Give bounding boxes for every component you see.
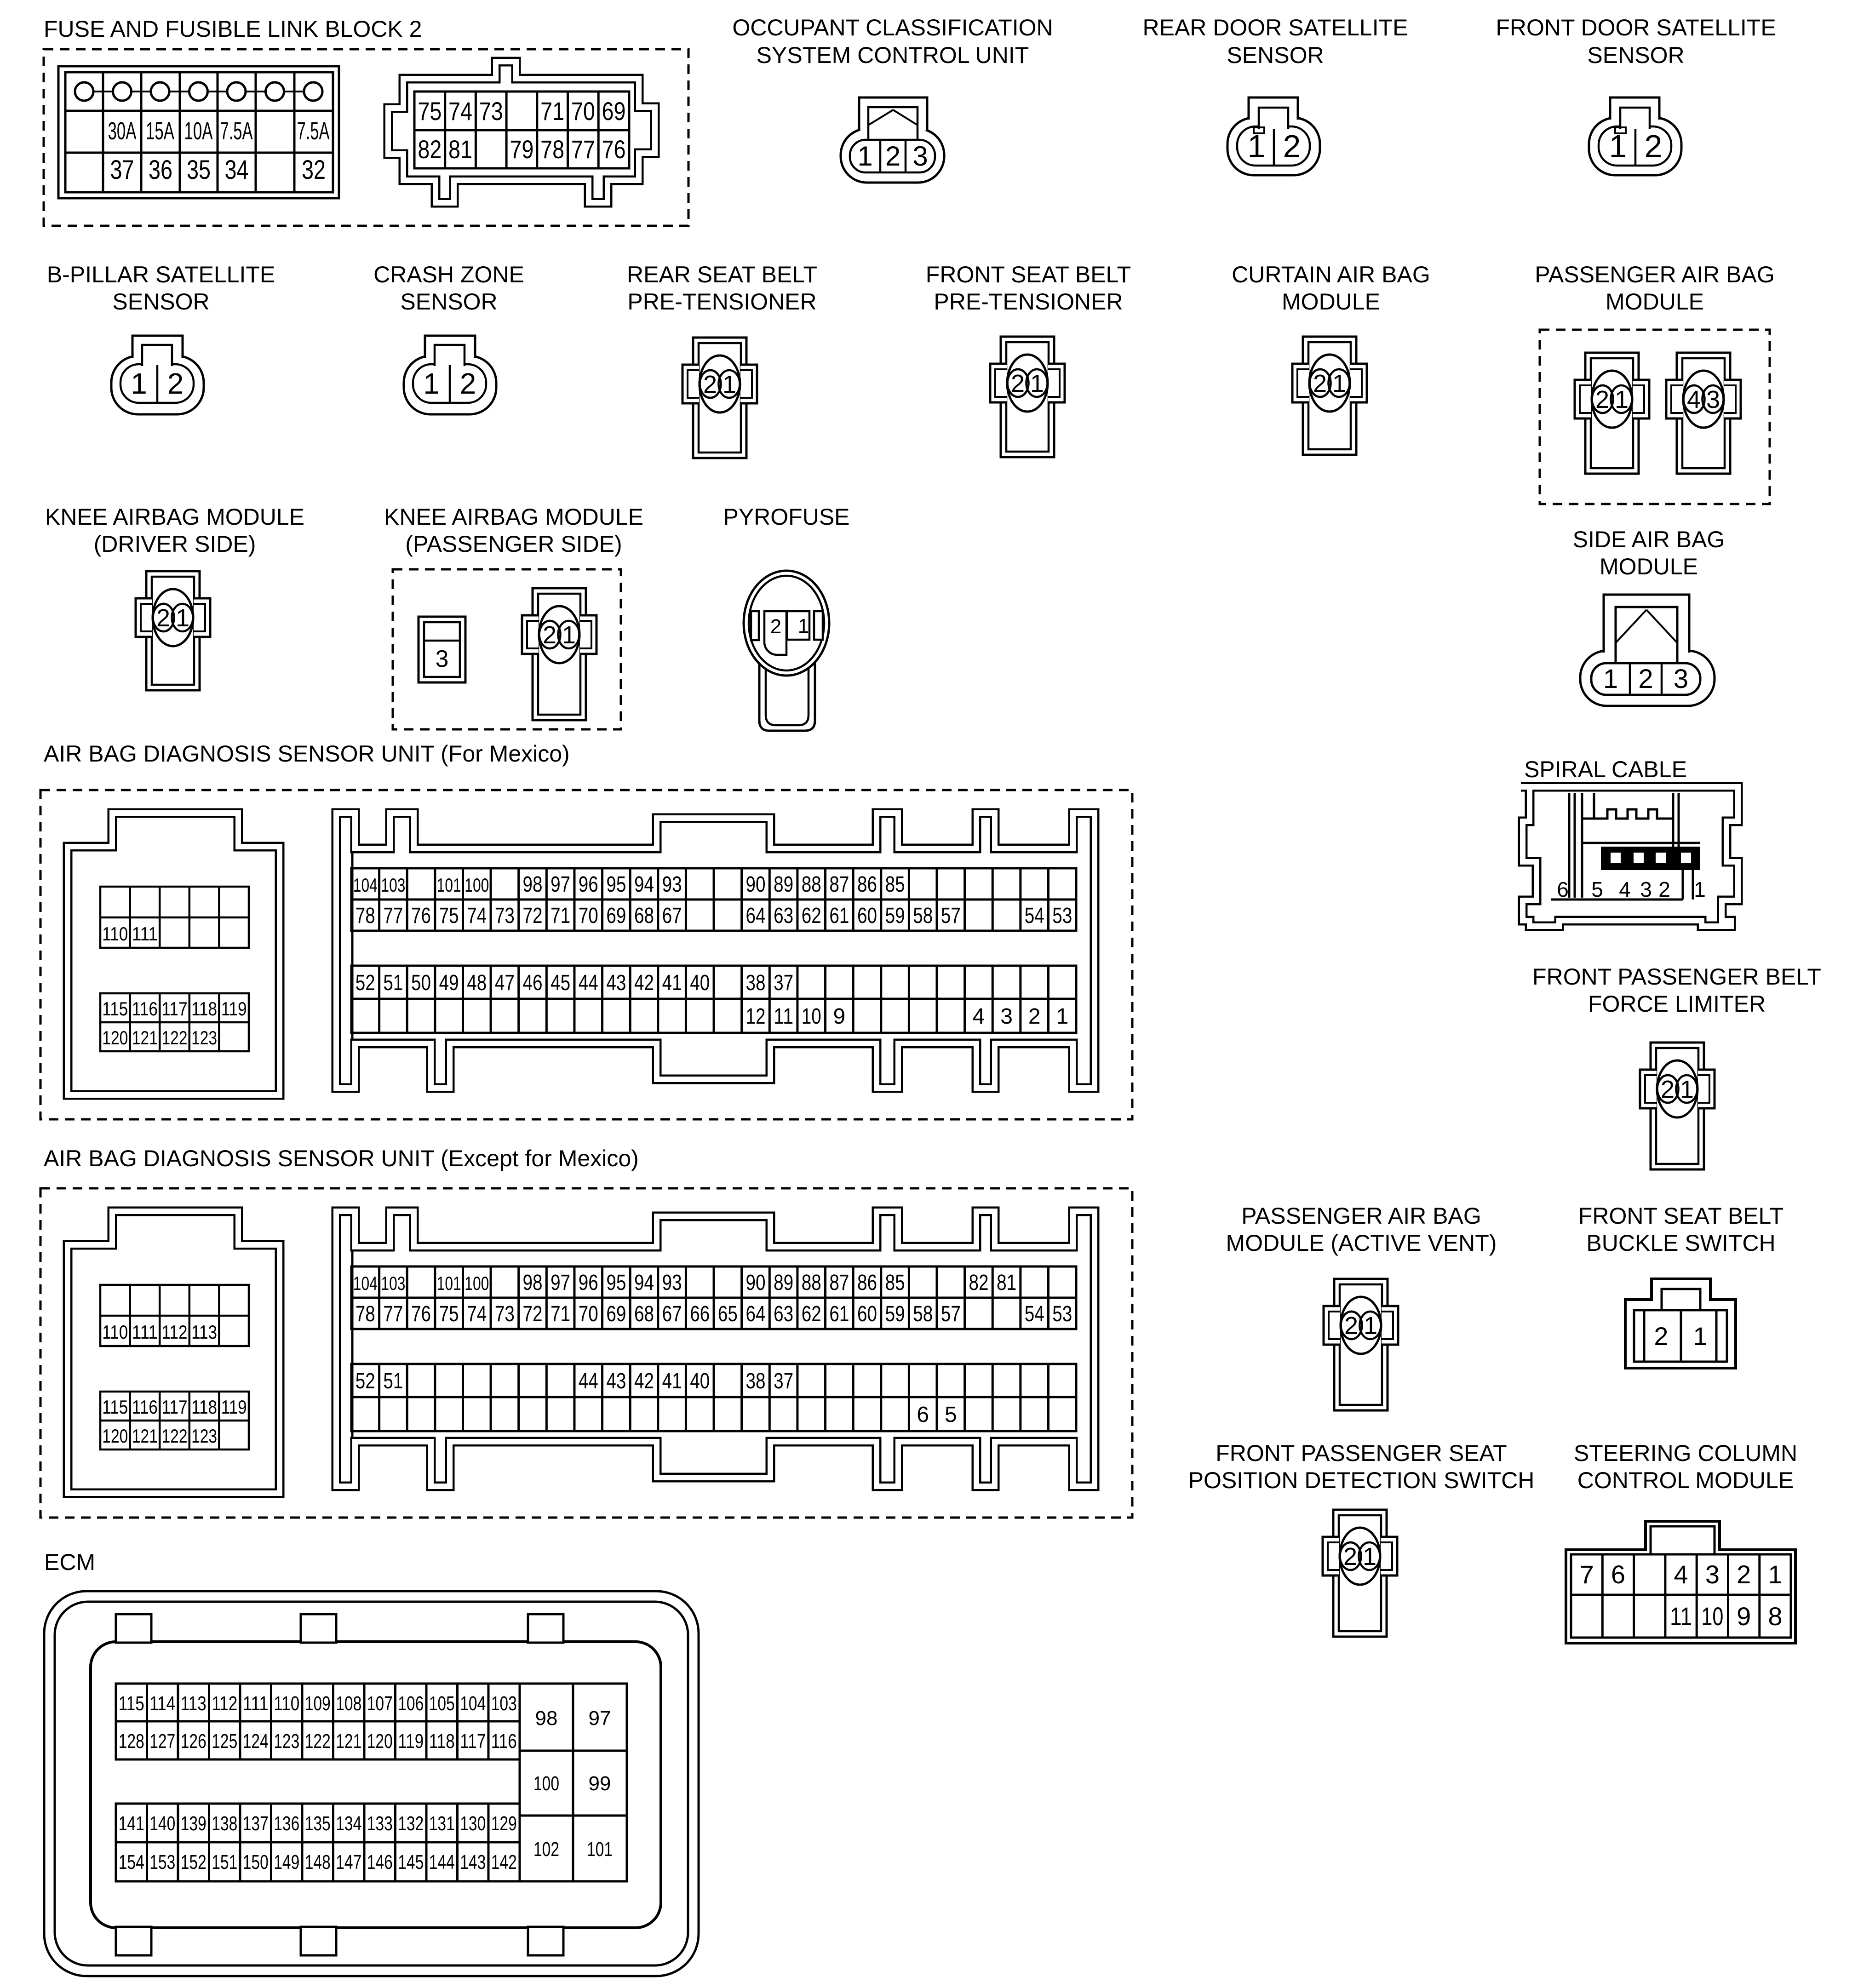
svg-text:CURTAIN AIR BAG: CURTAIN AIR BAG — [1232, 262, 1430, 287]
svg-text:51: 51 — [383, 1369, 403, 1393]
svg-text:111: 111 — [132, 923, 158, 945]
svg-text:40: 40 — [690, 1369, 710, 1393]
svg-text:36: 36 — [149, 155, 172, 185]
svg-text:101: 101 — [437, 1272, 461, 1294]
svg-text:90: 90 — [745, 1271, 765, 1295]
svg-text:153: 153 — [149, 1851, 175, 1873]
svg-text:58: 58 — [913, 904, 933, 928]
svg-text:151: 151 — [212, 1851, 237, 1873]
svg-text:38: 38 — [745, 1369, 765, 1393]
svg-text:41: 41 — [662, 971, 682, 995]
svg-text:116: 116 — [491, 1730, 517, 1753]
svg-text:122: 122 — [305, 1730, 331, 1753]
svg-text:MODULE: MODULE — [1282, 289, 1380, 315]
svg-text:85: 85 — [885, 1271, 905, 1295]
svg-text:4: 4 — [1674, 1560, 1688, 1589]
svg-text:3: 3 — [1705, 1560, 1720, 1589]
svg-text:SENSOR: SENSOR — [1587, 42, 1684, 68]
svg-text:11: 11 — [774, 1004, 793, 1029]
svg-text:6: 6 — [917, 1403, 929, 1427]
svg-text:76: 76 — [411, 1302, 431, 1326]
svg-text:5: 5 — [945, 1403, 957, 1427]
svg-text:MODULE: MODULE — [1606, 289, 1704, 315]
svg-text:32: 32 — [302, 155, 326, 185]
svg-text:54: 54 — [1025, 904, 1044, 928]
svg-text:AIR BAG DIAGNOSIS SENSOR UNIT: AIR BAG DIAGNOSIS SENSOR UNIT (For Mexic… — [44, 741, 570, 767]
svg-text:3: 3 — [912, 141, 928, 172]
svg-text:67: 67 — [662, 904, 682, 928]
svg-text:154: 154 — [119, 1851, 144, 1873]
svg-text:125: 125 — [212, 1730, 237, 1753]
svg-text:2: 2 — [543, 621, 556, 649]
svg-text:52: 52 — [356, 971, 375, 995]
svg-text:38: 38 — [745, 971, 765, 995]
svg-text:3: 3 — [436, 646, 449, 672]
svg-text:67: 67 — [662, 1302, 682, 1326]
svg-text:86: 86 — [857, 872, 877, 897]
svg-text:10: 10 — [1701, 1602, 1723, 1631]
svg-text:120: 120 — [102, 1425, 128, 1447]
svg-text:97: 97 — [589, 1707, 611, 1730]
svg-text:7: 7 — [1580, 1560, 1594, 1589]
svg-text:110: 110 — [102, 923, 128, 945]
svg-text:1: 1 — [1364, 1312, 1377, 1340]
svg-text:CRASH ZONE: CRASH ZONE — [373, 262, 524, 287]
svg-text:63: 63 — [774, 1302, 793, 1326]
svg-text:2: 2 — [703, 371, 717, 398]
svg-text:FORCE LIMITER: FORCE LIMITER — [1588, 991, 1766, 1017]
svg-text:99: 99 — [589, 1772, 611, 1795]
svg-text:2: 2 — [1343, 1543, 1357, 1570]
svg-text:FRONT PASSENGER BELT: FRONT PASSENGER BELT — [1532, 964, 1821, 990]
svg-text:112: 112 — [162, 1321, 188, 1343]
svg-text:71: 71 — [551, 1302, 570, 1326]
svg-text:62: 62 — [802, 1302, 821, 1326]
svg-text:110: 110 — [102, 1321, 128, 1343]
svg-text:48: 48 — [467, 971, 487, 995]
svg-text:62: 62 — [802, 904, 821, 928]
svg-text:1: 1 — [1680, 1076, 1694, 1103]
svg-text:126: 126 — [181, 1730, 206, 1753]
svg-text:88: 88 — [802, 872, 821, 897]
svg-text:1: 1 — [1248, 128, 1266, 164]
svg-text:145: 145 — [398, 1851, 424, 1873]
svg-text:113: 113 — [181, 1692, 206, 1715]
svg-text:11: 11 — [1670, 1602, 1692, 1631]
svg-text:FRONT SEAT BELT: FRONT SEAT BELT — [1578, 1203, 1783, 1229]
svg-text:129: 129 — [491, 1812, 517, 1835]
svg-text:116: 116 — [132, 998, 158, 1020]
svg-text:KNEE AIRBAG MODULE: KNEE AIRBAG MODULE — [384, 504, 643, 530]
svg-text:100: 100 — [464, 1272, 489, 1294]
svg-text:60: 60 — [857, 1302, 877, 1326]
svg-text:93: 93 — [662, 872, 682, 897]
svg-text:BUCKLE SWITCH: BUCKLE SWITCH — [1586, 1230, 1775, 1256]
svg-text:CONTROL MODULE: CONTROL MODULE — [1577, 1467, 1794, 1493]
svg-text:73: 73 — [495, 1302, 515, 1326]
svg-text:79: 79 — [510, 135, 533, 164]
svg-text:64: 64 — [745, 904, 765, 928]
svg-text:PASSENGER AIR BAG: PASSENGER AIR BAG — [1535, 262, 1774, 287]
svg-text:117: 117 — [162, 1396, 188, 1418]
svg-text:105: 105 — [429, 1692, 455, 1715]
svg-text:124: 124 — [243, 1730, 269, 1753]
svg-text:117: 117 — [460, 1730, 486, 1753]
svg-text:140: 140 — [149, 1812, 175, 1835]
svg-text:FUSE AND FUSIBLE LINK BLOCK 2: FUSE AND FUSIBLE LINK BLOCK 2 — [44, 16, 422, 42]
svg-text:60: 60 — [857, 904, 877, 928]
svg-text:(DRIVER SIDE): (DRIVER SIDE) — [94, 531, 256, 557]
svg-text:118: 118 — [191, 1396, 217, 1418]
svg-text:104: 104 — [353, 874, 378, 896]
svg-text:41: 41 — [662, 1369, 682, 1393]
svg-text:68: 68 — [634, 1302, 654, 1326]
svg-text:130: 130 — [460, 1812, 486, 1835]
svg-text:121: 121 — [132, 1425, 158, 1447]
svg-text:115: 115 — [102, 1396, 128, 1418]
svg-text:B-PILLAR SATELLITE: B-PILLAR SATELLITE — [47, 262, 275, 287]
svg-text:131: 131 — [429, 1812, 455, 1835]
svg-text:76: 76 — [602, 135, 626, 164]
svg-text:MODULE (ACTIVE VENT): MODULE (ACTIVE VENT) — [1226, 1230, 1497, 1256]
svg-text:69: 69 — [606, 904, 626, 928]
svg-text:104: 104 — [353, 1272, 378, 1294]
svg-text:2: 2 — [1028, 1004, 1041, 1029]
svg-text:72: 72 — [523, 904, 543, 928]
svg-text:2: 2 — [1661, 1076, 1674, 1103]
svg-text:1: 1 — [857, 141, 872, 172]
svg-text:119: 119 — [221, 1396, 247, 1418]
svg-text:111: 111 — [132, 1321, 158, 1343]
svg-text:97: 97 — [551, 872, 570, 897]
svg-text:76: 76 — [411, 904, 431, 928]
svg-text:PRE-TENSIONER: PRE-TENSIONER — [934, 289, 1123, 315]
svg-text:FRONT DOOR SATELLITE: FRONT DOOR SATELLITE — [1496, 15, 1776, 40]
svg-text:63: 63 — [774, 904, 793, 928]
svg-text:3: 3 — [1000, 1004, 1013, 1029]
svg-text:1: 1 — [423, 367, 440, 400]
svg-text:7.5A: 7.5A — [220, 117, 253, 145]
svg-text:88: 88 — [802, 1271, 821, 1295]
svg-text:1: 1 — [1363, 1543, 1376, 1570]
svg-text:1: 1 — [1056, 1004, 1068, 1029]
svg-text:2: 2 — [1638, 664, 1653, 694]
svg-text:2: 2 — [770, 615, 781, 638]
svg-text:54: 54 — [1025, 1302, 1044, 1326]
svg-text:FRONT PASSENGER SEAT: FRONT PASSENGER SEAT — [1216, 1440, 1507, 1466]
svg-text:147: 147 — [336, 1851, 361, 1873]
svg-text:66: 66 — [690, 1302, 710, 1326]
svg-text:146: 146 — [367, 1851, 393, 1873]
svg-text:77: 77 — [571, 135, 595, 164]
svg-text:52: 52 — [356, 1369, 375, 1393]
svg-text:1: 1 — [1693, 1322, 1707, 1351]
svg-text:98: 98 — [523, 1271, 543, 1295]
svg-text:FRONT SEAT BELT: FRONT SEAT BELT — [926, 262, 1131, 287]
svg-text:141: 141 — [119, 1812, 144, 1835]
svg-text:89: 89 — [774, 872, 793, 897]
svg-text:30A: 30A — [108, 117, 137, 145]
svg-text:PASSENGER AIR BAG: PASSENGER AIR BAG — [1241, 1203, 1481, 1229]
svg-text:78: 78 — [356, 904, 375, 928]
svg-text:95: 95 — [606, 872, 626, 897]
svg-text:59: 59 — [885, 1302, 905, 1326]
svg-text:1: 1 — [1609, 128, 1627, 164]
svg-text:75: 75 — [439, 1302, 459, 1326]
svg-text:70: 70 — [579, 904, 598, 928]
svg-text:44: 44 — [579, 971, 598, 995]
svg-text:1: 1 — [176, 604, 189, 632]
svg-text:70: 70 — [579, 1302, 598, 1326]
svg-text:2: 2 — [1654, 1322, 1668, 1351]
svg-text:100: 100 — [533, 1772, 559, 1795]
svg-text:58: 58 — [913, 1302, 933, 1326]
svg-text:43: 43 — [606, 1369, 626, 1393]
svg-text:103: 103 — [381, 1272, 405, 1294]
svg-text:77: 77 — [383, 1302, 403, 1326]
svg-text:51: 51 — [383, 971, 403, 995]
svg-text:98: 98 — [523, 872, 543, 897]
svg-text:89: 89 — [774, 1271, 793, 1295]
svg-text:12: 12 — [745, 1004, 765, 1029]
svg-text:SENSOR: SENSOR — [1227, 42, 1324, 68]
svg-text:REAR SEAT BELT: REAR SEAT BELT — [627, 262, 817, 287]
svg-text:3: 3 — [1706, 386, 1720, 413]
svg-text:4: 4 — [1687, 386, 1701, 413]
svg-text:ECM: ECM — [44, 1549, 95, 1575]
svg-text:61: 61 — [829, 1302, 849, 1326]
svg-text:1: 1 — [1768, 1560, 1782, 1589]
svg-text:5: 5 — [1591, 877, 1603, 901]
svg-text:104: 104 — [460, 1692, 486, 1715]
svg-text:118: 118 — [429, 1730, 455, 1753]
svg-text:42: 42 — [634, 1369, 654, 1393]
svg-text:43: 43 — [606, 971, 626, 995]
svg-text:103: 103 — [491, 1692, 517, 1715]
svg-text:150: 150 — [243, 1851, 269, 1873]
svg-text:40: 40 — [690, 971, 710, 995]
svg-text:1: 1 — [562, 621, 576, 649]
svg-text:134: 134 — [336, 1812, 361, 1835]
svg-text:106: 106 — [398, 1692, 424, 1715]
svg-text:93: 93 — [662, 1271, 682, 1295]
svg-text:1: 1 — [131, 367, 147, 400]
svg-text:103: 103 — [381, 874, 405, 896]
svg-text:1: 1 — [798, 615, 809, 637]
svg-text:PYROFUSE: PYROFUSE — [723, 504, 849, 530]
svg-text:6: 6 — [1611, 1560, 1625, 1589]
svg-text:94: 94 — [634, 1271, 654, 1295]
svg-text:78: 78 — [356, 1302, 375, 1326]
svg-text:96: 96 — [579, 872, 598, 897]
svg-text:2: 2 — [1283, 128, 1301, 164]
svg-text:137: 137 — [243, 1812, 269, 1835]
svg-text:132: 132 — [398, 1812, 424, 1835]
svg-text:1: 1 — [1332, 370, 1346, 397]
svg-text:95: 95 — [606, 1271, 626, 1295]
svg-text:53: 53 — [1052, 904, 1072, 928]
svg-text:111: 111 — [243, 1692, 269, 1715]
svg-text:144: 144 — [429, 1851, 455, 1873]
svg-text:138: 138 — [212, 1812, 237, 1835]
svg-text:64: 64 — [745, 1302, 765, 1326]
svg-text:61: 61 — [829, 904, 849, 928]
svg-text:10A: 10A — [184, 117, 213, 145]
svg-text:136: 136 — [274, 1812, 299, 1835]
svg-text:STEERING COLUMN: STEERING COLUMN — [1574, 1440, 1797, 1466]
svg-text:97: 97 — [551, 1271, 570, 1295]
svg-text:3: 3 — [1640, 877, 1652, 901]
svg-text:133: 133 — [367, 1812, 393, 1835]
svg-text:120: 120 — [102, 1027, 128, 1048]
svg-text:127: 127 — [149, 1730, 175, 1753]
svg-text:71: 71 — [540, 97, 564, 126]
svg-text:143: 143 — [460, 1851, 486, 1873]
svg-text:2: 2 — [167, 367, 184, 400]
svg-text:142: 142 — [491, 1851, 517, 1873]
svg-text:34: 34 — [225, 155, 249, 185]
svg-text:2: 2 — [1595, 386, 1609, 413]
svg-text:9: 9 — [1737, 1602, 1751, 1631]
svg-text:AIR BAG DIAGNOSIS SENSOR UNIT: AIR BAG DIAGNOSIS SENSOR UNIT (Except fo… — [44, 1146, 639, 1171]
svg-text:10: 10 — [802, 1004, 821, 1029]
svg-text:50: 50 — [411, 971, 431, 995]
svg-text:113: 113 — [191, 1321, 217, 1343]
svg-text:73: 73 — [495, 904, 515, 928]
svg-text:4: 4 — [1619, 877, 1631, 901]
svg-text:75: 75 — [418, 97, 442, 126]
svg-text:77: 77 — [383, 904, 403, 928]
svg-text:74: 74 — [448, 97, 472, 126]
svg-text:6: 6 — [1557, 877, 1569, 901]
svg-text:112: 112 — [212, 1692, 237, 1715]
svg-text:44: 44 — [579, 1369, 598, 1393]
svg-text:POSITION DETECTION SWITCH: POSITION DETECTION SWITCH — [1188, 1467, 1535, 1493]
svg-text:45: 45 — [551, 971, 570, 995]
svg-text:69: 69 — [602, 97, 626, 126]
svg-text:100: 100 — [464, 874, 489, 896]
svg-text:108: 108 — [336, 1692, 361, 1715]
svg-text:37: 37 — [774, 1369, 793, 1393]
svg-text:SPIRAL CABLE: SPIRAL CABLE — [1524, 756, 1687, 782]
svg-text:74: 74 — [467, 1302, 487, 1326]
svg-text:65: 65 — [718, 1302, 738, 1326]
svg-text:72: 72 — [523, 1302, 543, 1326]
svg-text:107: 107 — [367, 1692, 393, 1715]
svg-text:1: 1 — [723, 371, 736, 398]
svg-text:59: 59 — [885, 904, 905, 928]
svg-text:117: 117 — [162, 998, 188, 1020]
svg-text:35: 35 — [187, 155, 211, 185]
svg-text:122: 122 — [162, 1027, 188, 1048]
svg-text:7.5A: 7.5A — [297, 117, 330, 145]
svg-text:122: 122 — [162, 1425, 188, 1447]
svg-text:115: 115 — [102, 998, 128, 1020]
svg-text:87: 87 — [829, 1271, 849, 1295]
svg-text:57: 57 — [941, 1302, 961, 1326]
svg-text:86: 86 — [857, 1271, 877, 1295]
svg-text:SYSTEM CONTROL UNIT: SYSTEM CONTROL UNIT — [757, 42, 1029, 68]
svg-text:98: 98 — [535, 1707, 558, 1730]
svg-text:90: 90 — [745, 872, 765, 897]
svg-text:2: 2 — [1737, 1560, 1751, 1589]
svg-text:82: 82 — [418, 135, 442, 164]
svg-text:123: 123 — [191, 1425, 217, 1447]
svg-text:135: 135 — [305, 1812, 331, 1835]
svg-text:2: 2 — [1645, 128, 1663, 164]
svg-text:68: 68 — [634, 904, 654, 928]
svg-text:110: 110 — [274, 1692, 299, 1715]
svg-text:1: 1 — [1603, 664, 1618, 694]
svg-text:42: 42 — [634, 971, 654, 995]
svg-text:119: 119 — [221, 998, 247, 1020]
svg-text:101: 101 — [437, 874, 461, 896]
svg-text:81: 81 — [997, 1271, 1016, 1295]
svg-text:123: 123 — [274, 1730, 299, 1753]
svg-text:MODULE: MODULE — [1600, 554, 1698, 579]
svg-text:148: 148 — [305, 1851, 331, 1873]
svg-text:71: 71 — [551, 904, 570, 928]
svg-text:75: 75 — [439, 904, 459, 928]
svg-text:57: 57 — [941, 904, 961, 928]
svg-text:37: 37 — [110, 155, 134, 185]
svg-text:73: 73 — [479, 97, 503, 126]
svg-text:82: 82 — [969, 1271, 988, 1295]
svg-text:87: 87 — [829, 872, 849, 897]
svg-text:81: 81 — [448, 135, 472, 164]
svg-text:139: 139 — [181, 1812, 206, 1835]
svg-text:2: 2 — [885, 141, 900, 172]
svg-text:119: 119 — [398, 1730, 424, 1753]
svg-text:(PASSENGER SIDE): (PASSENGER SIDE) — [405, 531, 622, 557]
svg-text:3: 3 — [1674, 664, 1688, 694]
svg-text:121: 121 — [132, 1027, 158, 1048]
svg-text:114: 114 — [149, 1692, 175, 1715]
svg-text:118: 118 — [191, 998, 217, 1020]
svg-text:128: 128 — [119, 1730, 144, 1753]
svg-text:70: 70 — [571, 97, 595, 126]
svg-text:53: 53 — [1052, 1302, 1072, 1326]
svg-text:46: 46 — [523, 971, 543, 995]
svg-text:121: 121 — [336, 1730, 361, 1753]
svg-text:8: 8 — [1768, 1602, 1782, 1631]
svg-text:SENSOR: SENSOR — [400, 289, 497, 315]
svg-text:1: 1 — [1030, 370, 1044, 397]
svg-text:102: 102 — [533, 1838, 559, 1861]
svg-text:KNEE AIRBAG MODULE: KNEE AIRBAG MODULE — [45, 504, 304, 530]
svg-text:116: 116 — [132, 1396, 158, 1418]
svg-text:47: 47 — [495, 971, 515, 995]
svg-text:120: 120 — [367, 1730, 393, 1753]
svg-text:2: 2 — [1011, 370, 1025, 397]
svg-text:101: 101 — [587, 1838, 613, 1861]
svg-text:2: 2 — [1313, 370, 1327, 397]
svg-text:OCCUPANT CLASSIFICATION: OCCUPANT CLASSIFICATION — [732, 15, 1053, 40]
svg-text:49: 49 — [439, 971, 459, 995]
svg-text:96: 96 — [579, 1271, 598, 1295]
svg-text:152: 152 — [181, 1851, 206, 1873]
svg-text:85: 85 — [885, 872, 905, 897]
svg-text:78: 78 — [540, 135, 564, 164]
svg-text:4: 4 — [973, 1004, 985, 1029]
svg-text:109: 109 — [305, 1692, 331, 1715]
svg-text:SENSOR: SENSOR — [112, 289, 209, 315]
svg-text:15A: 15A — [146, 117, 174, 145]
svg-text:1: 1 — [1694, 877, 1706, 901]
svg-text:94: 94 — [634, 872, 654, 897]
svg-text:115: 115 — [119, 1692, 144, 1715]
svg-text:1: 1 — [1615, 386, 1629, 413]
